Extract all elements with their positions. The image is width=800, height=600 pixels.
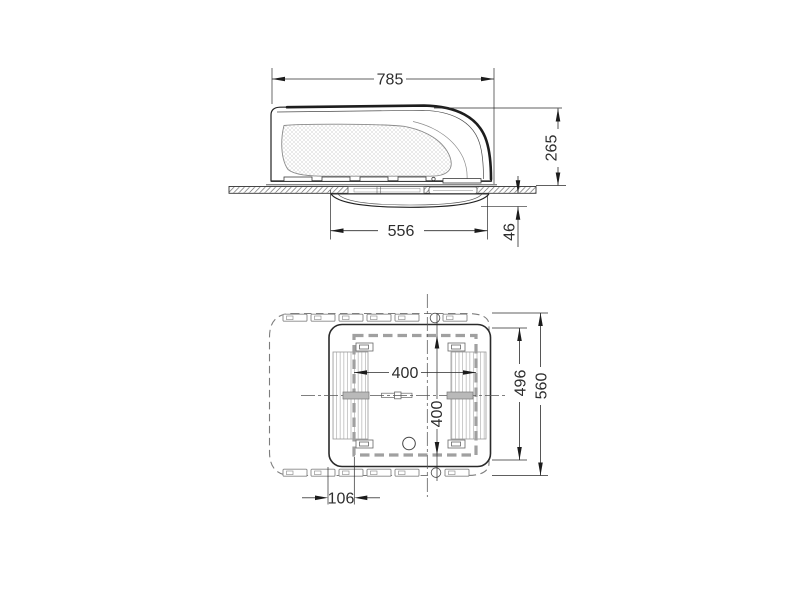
clamp-block-left [343,392,369,399]
arrowhead-right [481,77,494,82]
arrowhead-down [517,447,522,460]
slot [339,469,363,476]
dim-label: 785 [377,72,404,89]
slot [367,469,391,476]
foot [360,177,388,181]
arrowhead-right [475,228,488,233]
slot [311,314,335,321]
dim-label: 46 [502,223,519,241]
dim-inner-frame-width: 496 [492,328,530,460]
dim-label: 556 [388,223,415,240]
locating-hole-bottom [431,468,441,478]
locating-hole-top [430,313,440,323]
slot [283,314,307,321]
drawing-canvas: 785 265 556 46 [0,0,800,600]
slot [367,314,391,321]
arrowhead-up [517,328,522,341]
slot [339,314,363,321]
fixing-tab [356,343,373,351]
foot [398,177,426,181]
arrowhead-up [556,109,561,122]
foot [284,177,312,181]
fixing-tab [448,440,465,448]
arrowhead-up [538,313,543,326]
arrowhead-down [538,463,543,476]
arrowhead-left [272,77,285,82]
fixing-tab [448,343,465,351]
side-elevation-view: 785 265 556 46 [229,68,566,247]
dim-label: 400 [429,401,446,428]
technical-drawing: 785 265 556 46 [0,0,800,600]
slot [395,469,419,476]
slot [445,469,469,476]
arrowhead-right [315,496,328,501]
ceiling-assembly [331,187,489,208]
arrowhead-down [556,173,561,186]
foot-rail [443,179,481,183]
foot [322,177,350,181]
dim-label: 560 [534,373,551,400]
clamp-block-right [447,392,473,399]
dim-label: 265 [544,135,561,162]
dim-label: 400 [392,365,419,382]
ceiling-diffuser-dome [331,194,489,207]
slot [311,469,335,476]
arrowhead-up [516,207,521,220]
slot [443,314,467,321]
arrowhead-left [331,228,344,233]
cable-entry-hole [403,437,416,450]
dim-ceiling-unit-length: 556 [331,190,488,240]
dim-label: 106 [328,490,355,507]
slot [283,469,307,476]
fixing-tab [356,440,373,448]
diffuser-inner-line [338,194,482,205]
arrowhead-left [354,496,367,501]
ceiling-tray-left [348,187,424,194]
dim-label: 496 [513,370,530,397]
plan-view: 400 400 496 560 [270,294,551,507]
slot [395,314,419,321]
